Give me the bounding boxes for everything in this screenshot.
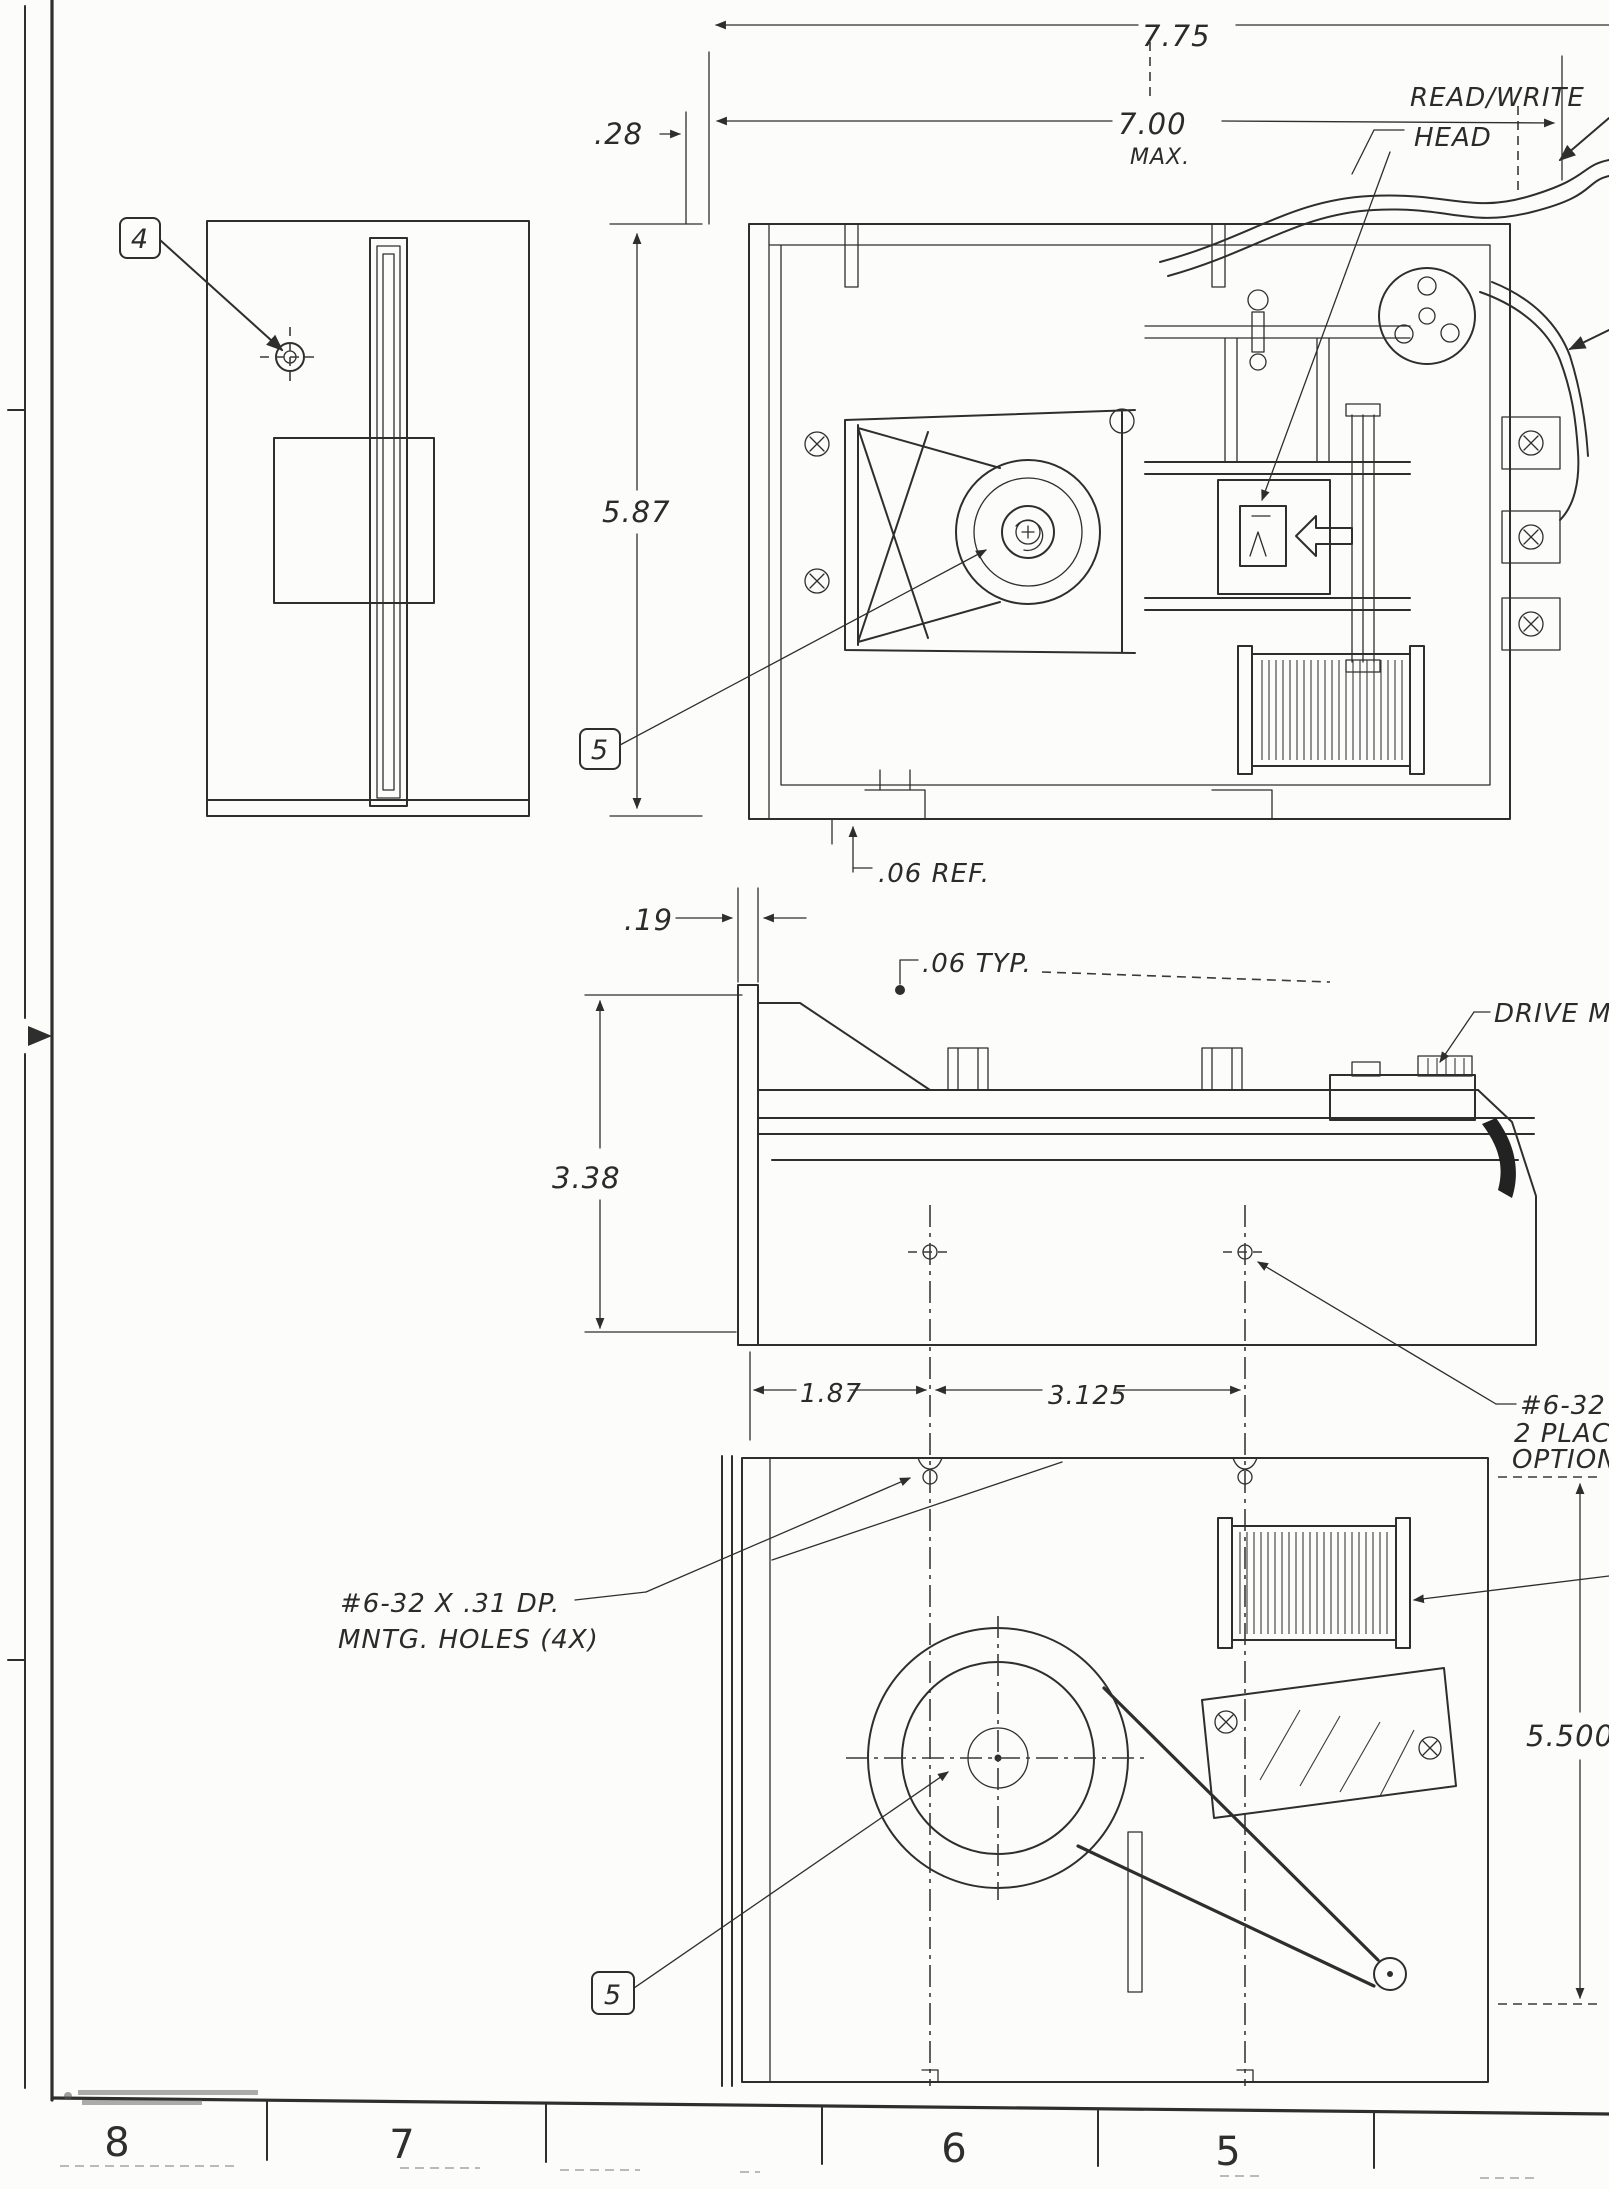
lever-bar xyxy=(1128,1832,1142,1992)
arrow-pointer-shape xyxy=(1296,516,1352,556)
tension-pin xyxy=(1248,290,1268,370)
fold-tick xyxy=(8,410,25,1660)
balloon-5-bottom-label: 5 xyxy=(604,1980,622,2011)
callout-drive-motor: DRIVE M xyxy=(1494,999,1609,1029)
top-view-outline xyxy=(749,224,1510,819)
bottom-coil xyxy=(1218,1518,1609,1648)
zone-number-5: 5 xyxy=(1215,2129,1240,2175)
read-write-head xyxy=(1240,506,1286,566)
side-mounting-holes xyxy=(908,1245,1267,1259)
slot-outer xyxy=(370,238,407,806)
typ-callout: .06 TYP. xyxy=(895,949,1330,995)
belt-edge xyxy=(1482,1118,1516,1198)
zone-number-6: 6 xyxy=(941,2126,966,2172)
dim-06-typ: .06 TYP. xyxy=(922,949,1032,979)
slot-inner xyxy=(383,254,394,790)
inner-walls xyxy=(769,224,1490,819)
callout-head: HEAD xyxy=(1414,123,1492,153)
drive-motor-callout: DRIVE M xyxy=(1440,999,1609,1062)
callout-read-write: READ/WRITE xyxy=(1410,83,1585,113)
front-panel-view: 4 xyxy=(120,218,529,816)
balloon-5-top-leader xyxy=(620,550,986,745)
hole-spacing-dimensions: 1.87 3.125 xyxy=(750,1352,1240,1440)
dim-7-00: 7.00 xyxy=(1118,107,1187,141)
dim-19: .19 xyxy=(624,903,673,937)
chassis-lines xyxy=(758,1090,1534,1160)
fold-arrow-icon xyxy=(28,1026,52,1046)
zone-number-8: 8 xyxy=(104,2120,129,2166)
balloon-5-top: 5 xyxy=(580,550,986,769)
bottom-view: 5 #6-32 X .31 DP. MNTG. HOLES (4X) 5.500 xyxy=(338,1456,1609,2086)
panel-outline xyxy=(207,221,529,816)
dim-3-125: 3.125 xyxy=(1048,1381,1127,1411)
bottom-notches xyxy=(922,2070,1253,2082)
head-carriage xyxy=(1145,326,1410,672)
dim-5-500: 5.500 xyxy=(1526,1719,1609,1753)
balloon-4-label: 4 xyxy=(131,224,149,255)
top-dimensions: 7.75 7.00 MAX. .28 5.87 .06 REF. READ/WR… xyxy=(594,19,1609,889)
drawing-sheet: 8 7 6 5 4 xyxy=(0,0,1609,2189)
pilot-hole xyxy=(260,327,320,387)
hole-notches xyxy=(918,1458,1257,1469)
dim-7-00-max: MAX. xyxy=(1130,145,1190,170)
dim-5-500-group: 5.500 xyxy=(1498,1477,1609,2004)
chassis-outline xyxy=(738,1090,1536,1345)
drive-belt xyxy=(1078,1688,1406,1990)
drive-motor-leader xyxy=(1440,1012,1474,1062)
bottom-border-line xyxy=(52,2098,1609,2114)
slot-mid xyxy=(377,246,400,798)
cable-leader-top xyxy=(1560,118,1609,160)
callout-mntg-1: #6-32 X .31 DP. xyxy=(340,1589,560,1619)
balloon-5-top-label: 5 xyxy=(591,735,609,766)
screw-left-bottom xyxy=(805,569,829,593)
drive-motor xyxy=(1330,1056,1475,1120)
top-brackets xyxy=(845,224,1225,287)
crease-line xyxy=(772,1462,1062,1560)
dim-1-87: 1.87 xyxy=(800,1379,862,1409)
callout-tap-3: OPTION xyxy=(1512,1445,1609,1475)
bottom-outline xyxy=(742,1458,1488,2082)
base-brackets xyxy=(865,770,1272,818)
motor-pulley xyxy=(1379,268,1475,364)
truss-frame xyxy=(845,410,1135,653)
dim-06-ref: .06 REF. xyxy=(878,859,990,889)
panel-center-box xyxy=(274,438,434,603)
stepper-coil xyxy=(1238,646,1424,774)
front-bezel xyxy=(738,985,758,1345)
bezel-edge xyxy=(722,1456,732,2086)
tap-callout: #6-32 T 2 PLACE OPTION xyxy=(1258,1262,1609,1475)
extension-lines xyxy=(686,52,709,224)
screw-left-top xyxy=(805,432,829,456)
mntg-holes-callout: #6-32 X .31 DP. MNTG. HOLES (4X) xyxy=(338,1478,910,1655)
mounting-centerlines xyxy=(930,1205,1245,2086)
callout-mntg-2: MNTG. HOLES (4X) xyxy=(338,1625,599,1655)
dim-3-38: 3.38 xyxy=(552,1161,621,1195)
top-view: 5 xyxy=(580,118,1609,819)
wedge xyxy=(758,1003,930,1090)
callout-tap-1: #6-32 T xyxy=(1520,1391,1609,1421)
spindle-hub xyxy=(956,460,1100,604)
tap-leader xyxy=(1258,1262,1496,1404)
mntg-leader xyxy=(646,1478,910,1592)
cable-bundle xyxy=(1160,118,1609,520)
top-blocks xyxy=(948,1048,1242,1090)
scan-noise xyxy=(60,2166,1540,2178)
side-elevation-view: .19 .06 TYP. 3.38 DRIVE M xyxy=(552,888,1609,2086)
balloon-5-bottom-leader xyxy=(634,1772,948,1988)
zone-number-7: 7 xyxy=(389,2122,414,2168)
cable-leader-mid xyxy=(1570,330,1609,349)
dim-7-75: 7.75 xyxy=(1142,19,1211,53)
balloon-4-leader xyxy=(160,240,282,350)
dim-28: .28 xyxy=(594,117,643,151)
balloon-4: 4 xyxy=(120,218,282,350)
dim-5-87: 5.87 xyxy=(602,495,671,529)
hatched-plate xyxy=(1202,1668,1456,1818)
